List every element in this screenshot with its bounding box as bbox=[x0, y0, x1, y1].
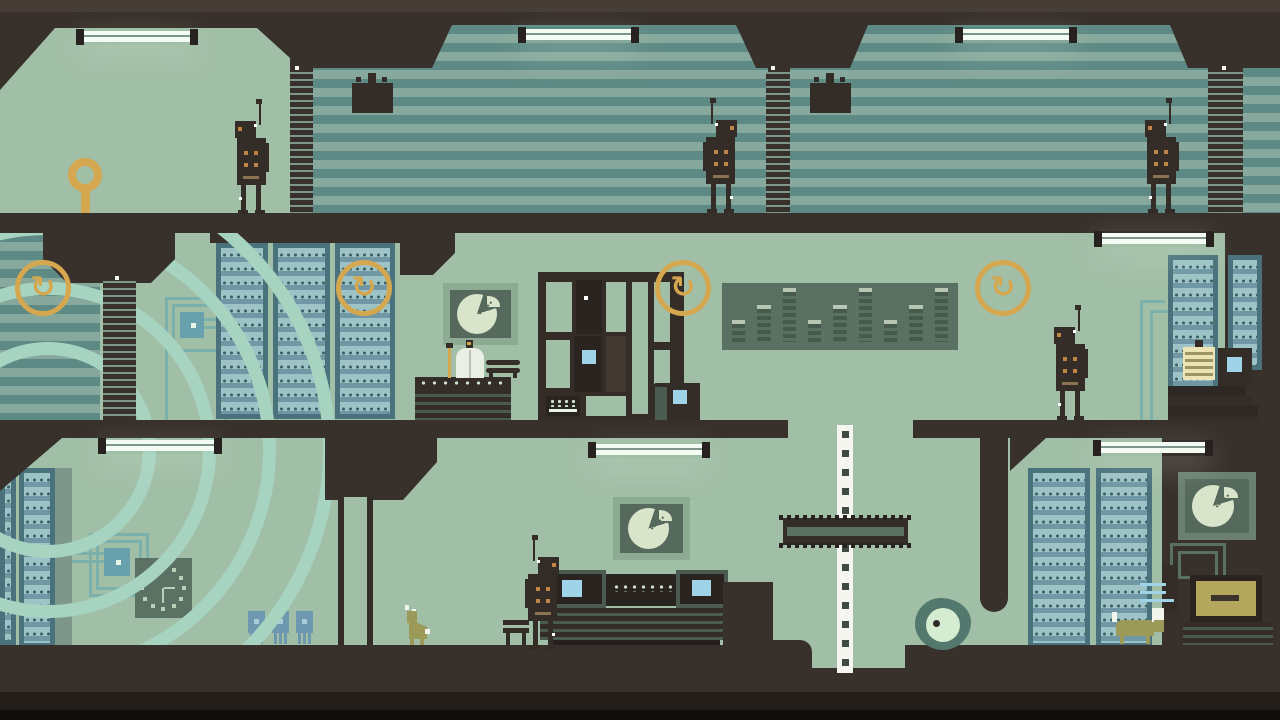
server-rack-m1 bbox=[216, 243, 268, 419]
ground-left bbox=[0, 645, 810, 695]
control-console bbox=[540, 568, 732, 652]
ceiling-light-7 bbox=[1095, 440, 1211, 456]
pie-gauge-3 bbox=[1178, 472, 1256, 540]
server-rack-b1 bbox=[0, 475, 16, 645]
floor-divider-2-right bbox=[913, 420, 1280, 438]
equalizer-bar bbox=[732, 324, 745, 342]
ceiling-light-2 bbox=[520, 27, 637, 43]
desk-lamp bbox=[446, 343, 454, 378]
equalizer-bar bbox=[859, 292, 872, 342]
key-marker-icon bbox=[68, 158, 104, 213]
component-leg bbox=[298, 633, 301, 644]
equalizer-bar bbox=[935, 292, 948, 342]
component-leg bbox=[284, 633, 287, 644]
bottom-band bbox=[0, 692, 1280, 710]
circuit-chip bbox=[104, 548, 130, 576]
console-robot bbox=[521, 535, 561, 650]
ceiling-light-1 bbox=[78, 29, 196, 45]
component-leg bbox=[255, 633, 258, 644]
console-side-block bbox=[723, 582, 773, 648]
component-leg bbox=[250, 633, 253, 644]
ground-right bbox=[905, 645, 1280, 695]
component-leg bbox=[303, 633, 306, 644]
ceiling-camera-box-1 bbox=[352, 73, 393, 113]
gear-platform[interactable] bbox=[783, 518, 908, 545]
pillar-dot bbox=[1222, 66, 1226, 70]
room-top-right-edge bbox=[1243, 68, 1280, 213]
pillar-dot bbox=[295, 66, 299, 70]
pillar-dot bbox=[115, 276, 119, 280]
outlined-column bbox=[338, 497, 373, 647]
equalizer-bar bbox=[884, 324, 897, 342]
wall-clock bbox=[135, 558, 192, 618]
pillar-top-1 bbox=[290, 72, 313, 213]
bench bbox=[486, 360, 520, 378]
swap-icon-2[interactable]: ↻ bbox=[336, 260, 392, 316]
pillar-middle bbox=[103, 281, 136, 420]
patrol-robot-3 bbox=[1143, 98, 1183, 213]
equalizer-bar bbox=[757, 309, 770, 342]
circuit-chip bbox=[180, 312, 204, 338]
dog bbox=[403, 605, 433, 645]
scientist-figure bbox=[456, 340, 484, 378]
elevator-pole bbox=[837, 425, 853, 673]
equalizer-bar bbox=[909, 309, 922, 342]
rack-header-beam bbox=[210, 233, 432, 243]
floor-divider-1 bbox=[0, 213, 1280, 233]
server-rack-b3 bbox=[1028, 468, 1090, 648]
small-terminal bbox=[655, 383, 700, 420]
equalizer-bar bbox=[808, 324, 821, 342]
pillar-top-2 bbox=[766, 72, 790, 213]
eyeball-creature bbox=[915, 598, 971, 650]
pillar-top-3 bbox=[1208, 72, 1243, 213]
ceiling-light-6 bbox=[590, 442, 708, 458]
relay-component-2 bbox=[272, 611, 289, 633]
equalizer-bar bbox=[833, 309, 846, 342]
swap-icon-3[interactable]: ↻ bbox=[655, 260, 711, 316]
relay-component-1 bbox=[248, 611, 265, 633]
pie-gauge-1 bbox=[443, 283, 518, 345]
pit-floor bbox=[810, 668, 905, 695]
component-leg bbox=[274, 633, 277, 644]
top-band bbox=[0, 0, 1280, 12]
game-viewport[interactable]: ↻ ↻ ↻ ↻ bbox=[0, 0, 1280, 720]
ceiling-light-3 bbox=[957, 27, 1075, 43]
swap-icon-1[interactable]: ↻ bbox=[15, 260, 71, 316]
patrol-robot-2 bbox=[699, 98, 739, 213]
ceiling-light-4 bbox=[1096, 231, 1212, 247]
pit bbox=[810, 438, 905, 668]
lab-desk bbox=[415, 377, 511, 420]
hanging-column bbox=[980, 430, 1008, 612]
bottom-black-band bbox=[0, 710, 1280, 720]
circuit-trace bbox=[72, 552, 104, 555]
patrol-robot-4 bbox=[1052, 305, 1092, 420]
equalizer-panel bbox=[722, 283, 958, 350]
equalizer-bar bbox=[783, 292, 796, 342]
component-leg bbox=[279, 633, 282, 644]
tray-stack-machine bbox=[1183, 340, 1215, 380]
pillar-dot bbox=[771, 66, 775, 70]
ceiling-light-5 bbox=[100, 438, 220, 454]
rack-side-post bbox=[55, 468, 72, 648]
patrol-robot-1 bbox=[233, 99, 273, 214]
cat bbox=[1112, 606, 1168, 644]
equalizer-bars bbox=[732, 291, 948, 342]
ceiling-camera-box-2 bbox=[810, 73, 851, 113]
swap-icon-4[interactable]: ↻ bbox=[975, 260, 1031, 316]
server-rack-m2 bbox=[273, 243, 330, 419]
relay-component-3 bbox=[296, 611, 313, 633]
screen-box bbox=[1218, 348, 1252, 386]
circuit-trace bbox=[72, 560, 104, 563]
component-leg bbox=[308, 633, 311, 644]
pie-gauge-2 bbox=[613, 497, 690, 560]
server-rack-b2 bbox=[19, 468, 55, 648]
component-leg bbox=[260, 633, 263, 644]
